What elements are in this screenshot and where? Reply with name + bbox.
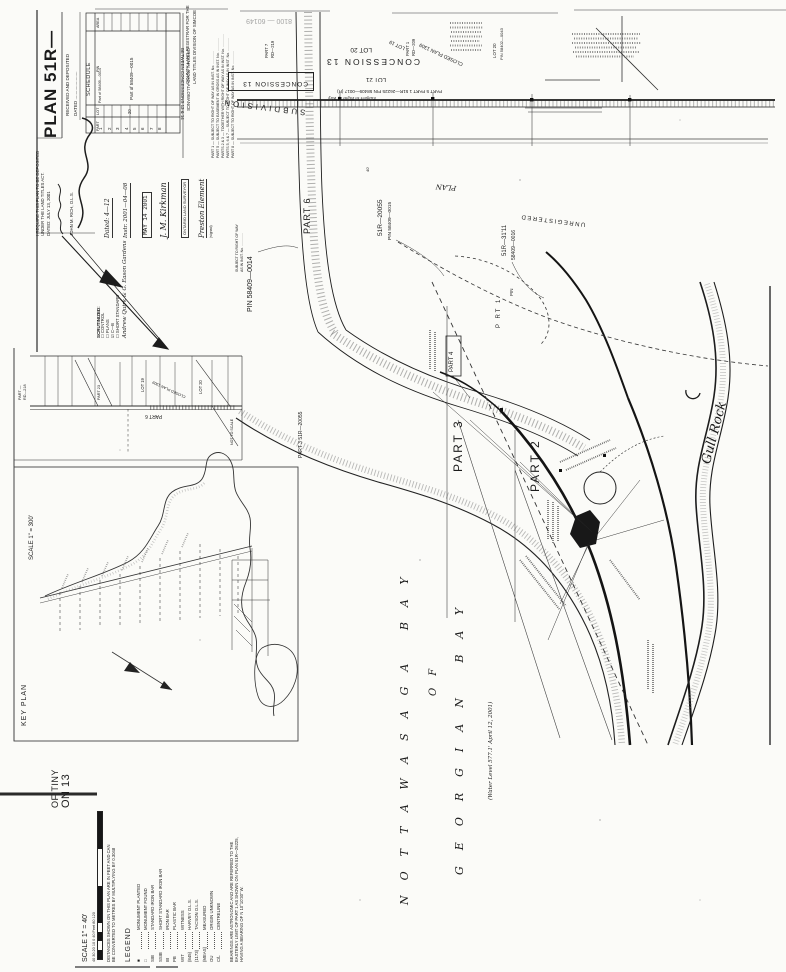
road-allowance-line2: BETWEEN CONCESSIONS 13 & 14: [180, 48, 184, 120]
road-strip-note2: Subject to Right of Way: [328, 96, 376, 100]
lot-20-label: LOT 20: [350, 46, 372, 53]
strip-inset-lines: [14, 356, 242, 460]
legend-leader: [182, 932, 186, 949]
strip-lot20-label: LOT 20: [199, 380, 203, 394]
pin-58409-0014-label: PIN 58409—0014: [247, 256, 254, 312]
schedule-row-number: 6: [141, 127, 146, 130]
legend-leader: [138, 932, 142, 949]
legend-desc: STANDARD IRON BAR: [151, 885, 156, 930]
legend-desc: PLASTIC BAR: [173, 902, 178, 930]
schedule-row-number: 7: [150, 127, 155, 130]
legend-symbol: IB: [166, 949, 171, 962]
legend-leader: [174, 932, 178, 949]
legend-leader: [167, 932, 171, 949]
schedule-row-number: 8: [158, 127, 163, 130]
legend-desc: MONUMENT FOUND: [144, 888, 149, 930]
legend-symbol: SIB: [151, 949, 156, 962]
legend-title: LEGEND: [125, 784, 133, 962]
rd209-label: RD—209: [412, 39, 416, 56]
bearings-note-3: HAVING A BEARING OF N 10°10'30" W.: [240, 784, 245, 962]
schedule-title: SCHEDULE: [87, 62, 93, 96]
pin-58409-0015-label: PIN 58409—0015: [389, 202, 394, 240]
topright-fragments: [525, 16, 658, 112]
legend-item: SIBSTANDARD IRON BAR: [151, 784, 156, 962]
schedule-row-number: 2: [108, 127, 113, 130]
cert-instr-hand: Instr. 2001—04—08: [123, 183, 130, 238]
cert-signed-note: (signed): [209, 140, 213, 238]
legend-leader: [204, 932, 208, 949]
part3-51r20055-label: PART 3 51R—20055: [299, 412, 304, 458]
legend-symbol: SSIB: [159, 949, 164, 962]
bay-of-label: OF: [429, 657, 439, 696]
sheet-title-line1: OF TINY: [50, 748, 60, 808]
strip-part6-label: PART 6: [145, 413, 162, 418]
scanned-survey-plan-sheet: PLAN 51R— RECEIVED AND DEPOSITED DATED .…: [0, 0, 786, 972]
schedule-row-number: 4: [125, 127, 130, 130]
cert-signature-2: Preston Element: [198, 179, 207, 238]
legend-item: IBIRON BAR: [166, 784, 171, 962]
legend-symbol: PB: [173, 949, 178, 962]
rd219-label: RD—219: [271, 41, 275, 58]
concession-13-label-b: CONCESSION 13: [242, 80, 308, 87]
schedule-lot-value: 20: [128, 109, 132, 114]
legend-leader: [145, 932, 149, 949]
registrar-line2: LAND TITLES DIVISION OF SIMCOE: [193, 10, 197, 84]
certificate-block: Dated: 4—12 Instr. 2001—04—08 MAY 14 200…: [96, 140, 213, 238]
received-deposited-label: RECEIVED AND DEPOSITED: [66, 54, 71, 116]
concession-13-label-a: CONCESSION 13: [325, 58, 420, 67]
legend-desc: SHORT STANDARD IRON BAR: [159, 869, 164, 930]
legend-leader: [196, 932, 200, 949]
scale-legend-block: SCALE 1" = 40' 40 30 20 10 0 40 Feet 80 …: [82, 784, 245, 962]
road-allowance-line1: ORIGINAL ROAD ALLOWANCE: [186, 48, 190, 111]
legend-item: SSIBSHORT STANDARD IRON BAR: [159, 784, 164, 962]
legend-item: (1173)TACSON O.L.S.: [195, 784, 200, 962]
schedule-row-number: 5: [133, 127, 138, 130]
scale-bar: [97, 811, 103, 960]
part-2-label: PART 2: [529, 439, 541, 492]
part-1-vertical-label: P RT 1: [496, 298, 502, 328]
plan-number-title: PLAN 51R—: [42, 30, 59, 138]
signature-graphic: [52, 134, 70, 236]
dated-blank-label: DATED ......................: [74, 71, 79, 116]
legend-item: OUORIGIN UNKNOWN: [210, 784, 215, 962]
row-note-line2: AS IN INST. No. .............: [241, 233, 245, 272]
legend-desc: IRON BAR: [166, 909, 171, 930]
strip-rd218-label: RD—218: [24, 384, 28, 400]
checklist-item: ☐ SHORT STANDARD: [116, 238, 121, 338]
51r-3111-label: 51R—31'11: [502, 225, 508, 256]
scan-smudges: [95, 9, 786, 13]
schedule-row-number: 3: [116, 127, 121, 130]
cert-dated-hand: Dated: 4—12: [105, 198, 113, 238]
water-level-note: (Water Level 577.1' April 12, 2001): [489, 702, 495, 800]
road-strip-note: PART 5 PART 1 51R—26225 PIN 58409—0017 (…: [337, 88, 442, 93]
key-plan-lines: [14, 453, 298, 741]
bold-roads: [440, 252, 692, 745]
strip-lot19-label: LOT 19: [141, 378, 145, 392]
legend-item: (845)HARVEY O.L.S.: [188, 784, 193, 962]
row-note-line1: SUBJECT TO RIGHT OF WAY: [236, 224, 240, 272]
part-4-label: PART 4: [449, 352, 455, 372]
plan-word-label: PLAN: [436, 182, 457, 191]
part-3-label: PART 3: [452, 419, 464, 472]
pin-58402-label: PIN 58402—0043: [500, 28, 504, 60]
schedule-row-number: 1: [99, 127, 104, 130]
pin-word-label: PIN: [510, 288, 515, 296]
legend-leader: [218, 932, 222, 949]
stamp-number: 8100 — 60149: [246, 17, 292, 24]
sheet-title-line2: ON 13: [60, 748, 73, 808]
scale-bar-numbers: 40 30 20 10 0 40 Feet 80 120: [92, 784, 96, 962]
sheet-title-fragment: OF TINY ON 13: [50, 748, 73, 808]
georgian-bay-label: GEORGIAN BAY: [454, 592, 465, 875]
legend-item: WITWITNESS: [181, 784, 186, 962]
width-40ft-label: 40': [366, 167, 370, 172]
legend-leader: [160, 932, 164, 949]
examiner-checklist-block: SCRUTINIZED: ☐ CONTROL ☐ PLANS ☑ C—B ☐ S…: [96, 238, 129, 338]
cert-signature-1: J. M. Kirkman: [159, 182, 169, 238]
schedule-pin-merged: Part of 58409—0015: [130, 58, 135, 100]
schedule-pin-row1: Part of 58409—0014: [99, 68, 103, 103]
cert-role-box: ONTARIO LAND SURVEYOR: [181, 179, 189, 238]
pin-58409-0016-label: 58409—0016: [512, 230, 517, 260]
legend-symbol: OU: [210, 949, 215, 962]
legend-symbol: ■: [137, 949, 142, 962]
part7-label: PART 7: [265, 44, 269, 58]
legend-desc: MONUMENT PLANTED: [137, 884, 142, 930]
strip-not-to-scale-label: NOT TO SCALE: [231, 419, 235, 445]
schedule-col-lot: LOT: [97, 108, 101, 115]
legend-leader: [189, 932, 193, 949]
key-plan-scale-label: SCALE 1" = 300': [29, 515, 35, 560]
deposit-statement-block: I REQUIRE THIS PLAN TO BE DEPOSITED UNDE…: [36, 134, 75, 236]
legend-desc: CENTRELINE: [217, 903, 222, 930]
distance-note-2: BE CONVERTED TO METRES BY MULTIPLYING BY…: [112, 784, 117, 962]
legend-symbol: C/L: [217, 949, 222, 962]
legend-item: C/LCENTRELINE: [217, 784, 222, 962]
checklist-firm-signature: Andrew Quirk & G. Eason Gardens: [122, 238, 128, 338]
signature-squiggle: [78, 118, 92, 228]
road-allowance-lines: [237, 93, 775, 146]
lot-21-label: LOT 21: [366, 76, 386, 82]
legend-desc: ORIGIN UNKNOWN: [210, 891, 215, 930]
legend-item: □MONUMENT FOUND: [144, 784, 149, 962]
legend-symbol: (845): [188, 949, 193, 962]
legend-symbol: (MEAS): [203, 949, 208, 962]
legend-leader: [211, 932, 215, 949]
stamp-text-noise: [450, 23, 641, 57]
legend-item: (MEAS)MEASURED: [203, 784, 208, 962]
nottawasaga-bay-label: NOTTAWASAGA BAY: [399, 562, 410, 905]
part-6-label: PART 6: [303, 197, 312, 234]
legend-leader: [152, 932, 156, 949]
legend-item: ■MONUMENT PLANTED: [137, 784, 142, 962]
legend-item: PBPLASTIC BAR: [173, 784, 178, 962]
scale-label: SCALE 1" = 40': [82, 784, 90, 962]
cert-date-stamp: MAY 14 2001: [142, 192, 152, 238]
require-signed: JOHN M. RICH, O.L.S.: [70, 134, 75, 236]
strip-part23-label: PART 23: [98, 385, 102, 400]
lot-20b-label: LOT 20: [493, 43, 497, 58]
part1-rd209-label: PART 1: [406, 42, 410, 56]
travelled-road: [296, 12, 590, 456]
legend-desc: MEASURED: [203, 906, 208, 930]
legend-desc: HARVEY O.L.S.: [188, 899, 193, 930]
legend-desc: TACSON O.L.S.: [195, 899, 200, 930]
schedule-col-area: AREA: [97, 18, 101, 28]
river: [668, 282, 730, 745]
key-plan-title: KEY PLAN: [21, 684, 28, 726]
51r-20055-label: 51R—20055: [378, 200, 385, 237]
legend-symbol: (1173): [195, 949, 200, 962]
legend-symbol: WIT: [181, 949, 186, 962]
legend-symbol: □: [144, 949, 149, 962]
legend-desc: WITNESS: [181, 910, 186, 930]
